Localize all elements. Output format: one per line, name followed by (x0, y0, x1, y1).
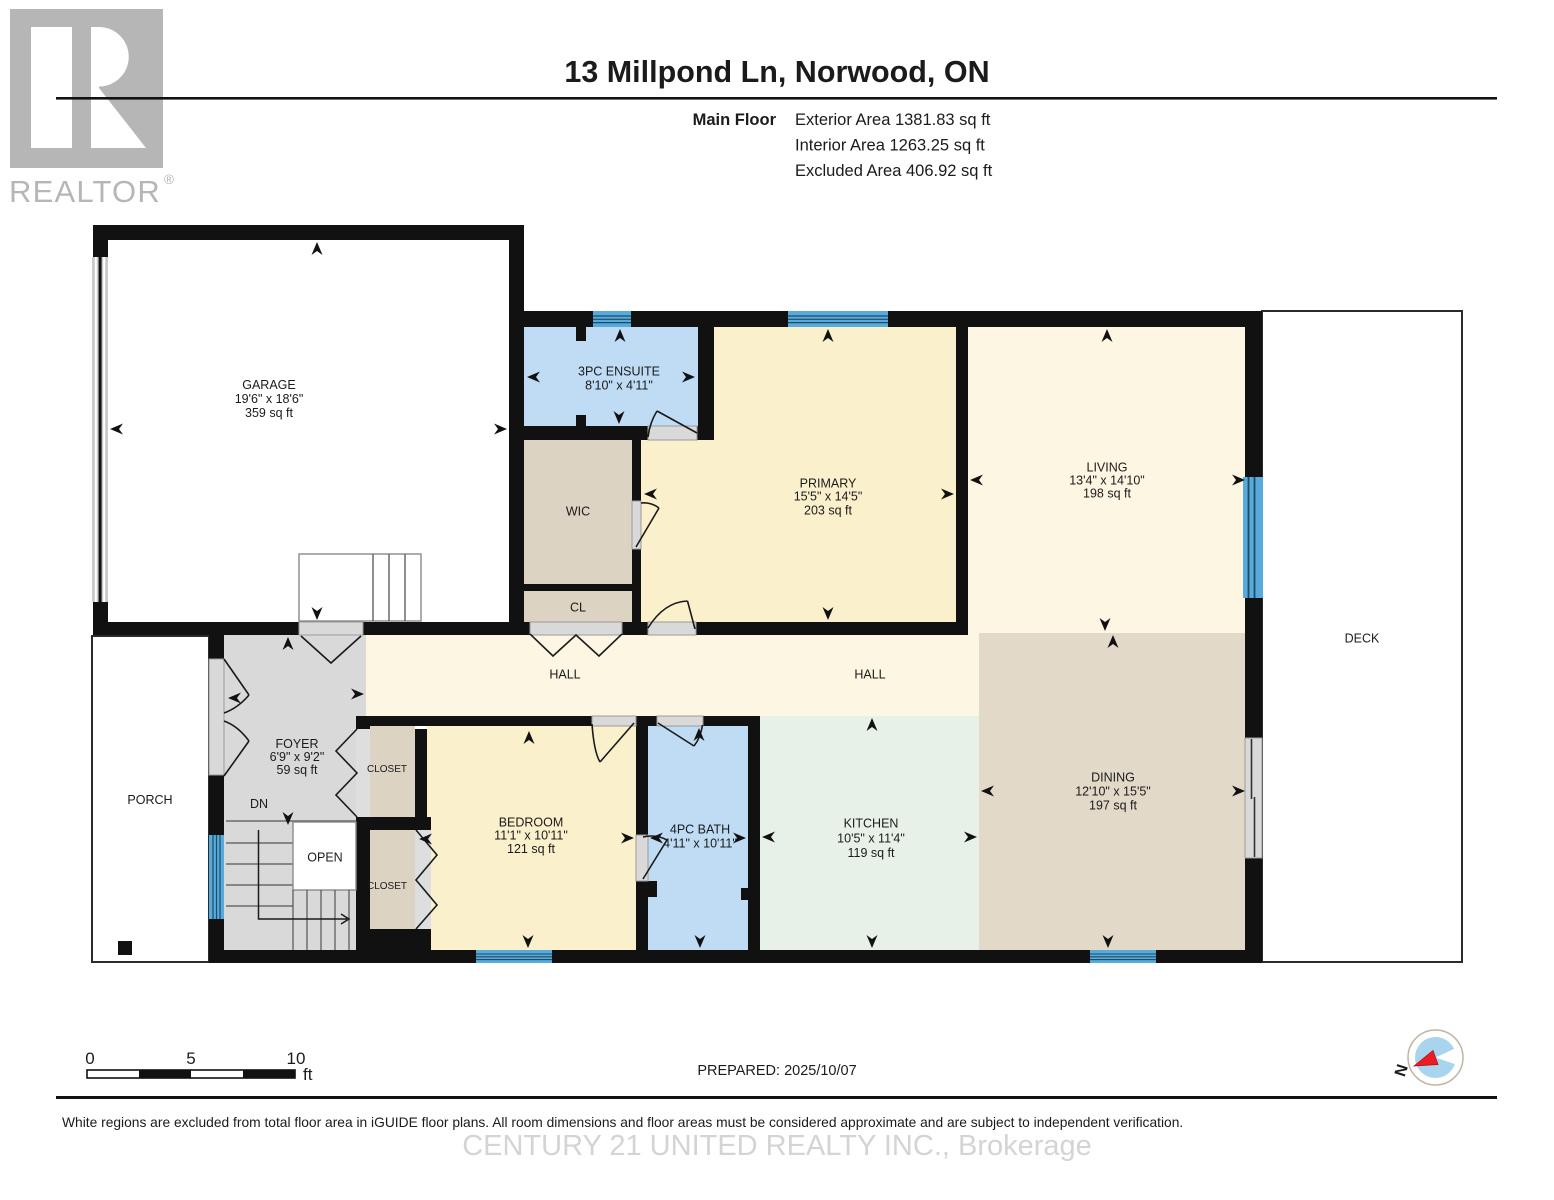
svg-text:0: 0 (85, 1049, 94, 1068)
svg-text:4'11" x 10'11": 4'11" x 10'11" (663, 837, 737, 851)
svg-text:203 sq ft: 203 sq ft (804, 504, 852, 518)
svg-text:CENTURY 21 UNITED REALTY INC.,: CENTURY 21 UNITED REALTY INC., Brokerage (462, 1130, 1092, 1162)
svg-text:3PC ENSUITE: 3PC ENSUITE (578, 365, 660, 379)
svg-text:11'1" x 10'11": 11'1" x 10'11" (494, 829, 568, 843)
svg-text:KITCHEN: KITCHEN (844, 817, 899, 831)
svg-text:4PC BATH: 4PC BATH (670, 823, 730, 837)
svg-text:Excluded Area 406.92 sq ft: Excluded Area 406.92 sq ft (795, 162, 993, 180)
svg-text:BEDROOM: BEDROOM (499, 816, 564, 830)
svg-text:CL: CL (570, 601, 586, 615)
svg-text:WIC: WIC (566, 505, 590, 519)
svg-text:HALL: HALL (549, 668, 580, 682)
svg-text:PREPARED: 2025/10/07: PREPARED: 2025/10/07 (697, 1063, 856, 1079)
svg-text:121 sq ft: 121 sq ft (507, 842, 555, 856)
svg-text:LIVING: LIVING (1087, 461, 1128, 475)
svg-text:119 sq ft: 119 sq ft (847, 846, 895, 860)
svg-text:®: ® (164, 172, 174, 187)
svg-text:FOYER: FOYER (275, 737, 318, 751)
svg-text:DN: DN (250, 797, 268, 811)
svg-text:13'4" x 14'10": 13'4" x 14'10" (1069, 474, 1145, 488)
svg-text:198 sq ft: 198 sq ft (1083, 487, 1131, 501)
svg-text:PORCH: PORCH (127, 793, 172, 807)
svg-text:12'10" x 15'5": 12'10" x 15'5" (1075, 785, 1151, 799)
svg-text:Exterior Area 1381.83 sq ft: Exterior Area 1381.83 sq ft (795, 111, 991, 129)
svg-text:HALL: HALL (854, 668, 885, 682)
svg-text:ft: ft (303, 1065, 313, 1084)
svg-text:Interior Area 1263.25 sq ft: Interior Area 1263.25 sq ft (795, 137, 985, 155)
svg-text:CLOSET: CLOSET (367, 881, 407, 892)
svg-text:19'6" x 18'6": 19'6" x 18'6" (235, 392, 304, 406)
svg-text:REALTOR: REALTOR (9, 174, 161, 209)
svg-text:OPEN: OPEN (307, 851, 342, 865)
svg-text:59 sq ft: 59 sq ft (277, 763, 319, 777)
svg-text:CLOSET: CLOSET (367, 764, 407, 775)
svg-text:10'5" x 11'4": 10'5" x 11'4" (837, 832, 905, 846)
svg-text:PRIMARY: PRIMARY (800, 477, 857, 491)
svg-text:13 Millpond Ln, Norwood, ON: 13 Millpond Ln, Norwood, ON (564, 55, 989, 89)
svg-text:GARAGE: GARAGE (242, 378, 296, 392)
svg-text:359 sq ft: 359 sq ft (245, 406, 293, 420)
svg-text:6'9" x 9'2": 6'9" x 9'2" (270, 750, 325, 764)
svg-text:197 sq ft: 197 sq ft (1089, 799, 1137, 813)
svg-text:8'10" x 4'11": 8'10" x 4'11" (585, 379, 653, 393)
svg-text:DINING: DINING (1091, 771, 1135, 785)
svg-text:White regions are excluded fro: White regions are excluded from total fl… (62, 1115, 1183, 1130)
svg-text:5: 5 (186, 1049, 195, 1068)
svg-text:DECK: DECK (1345, 632, 1380, 646)
svg-text:15'5" x 14'5": 15'5" x 14'5" (794, 490, 863, 504)
svg-text:Main Floor: Main Floor (693, 111, 777, 129)
